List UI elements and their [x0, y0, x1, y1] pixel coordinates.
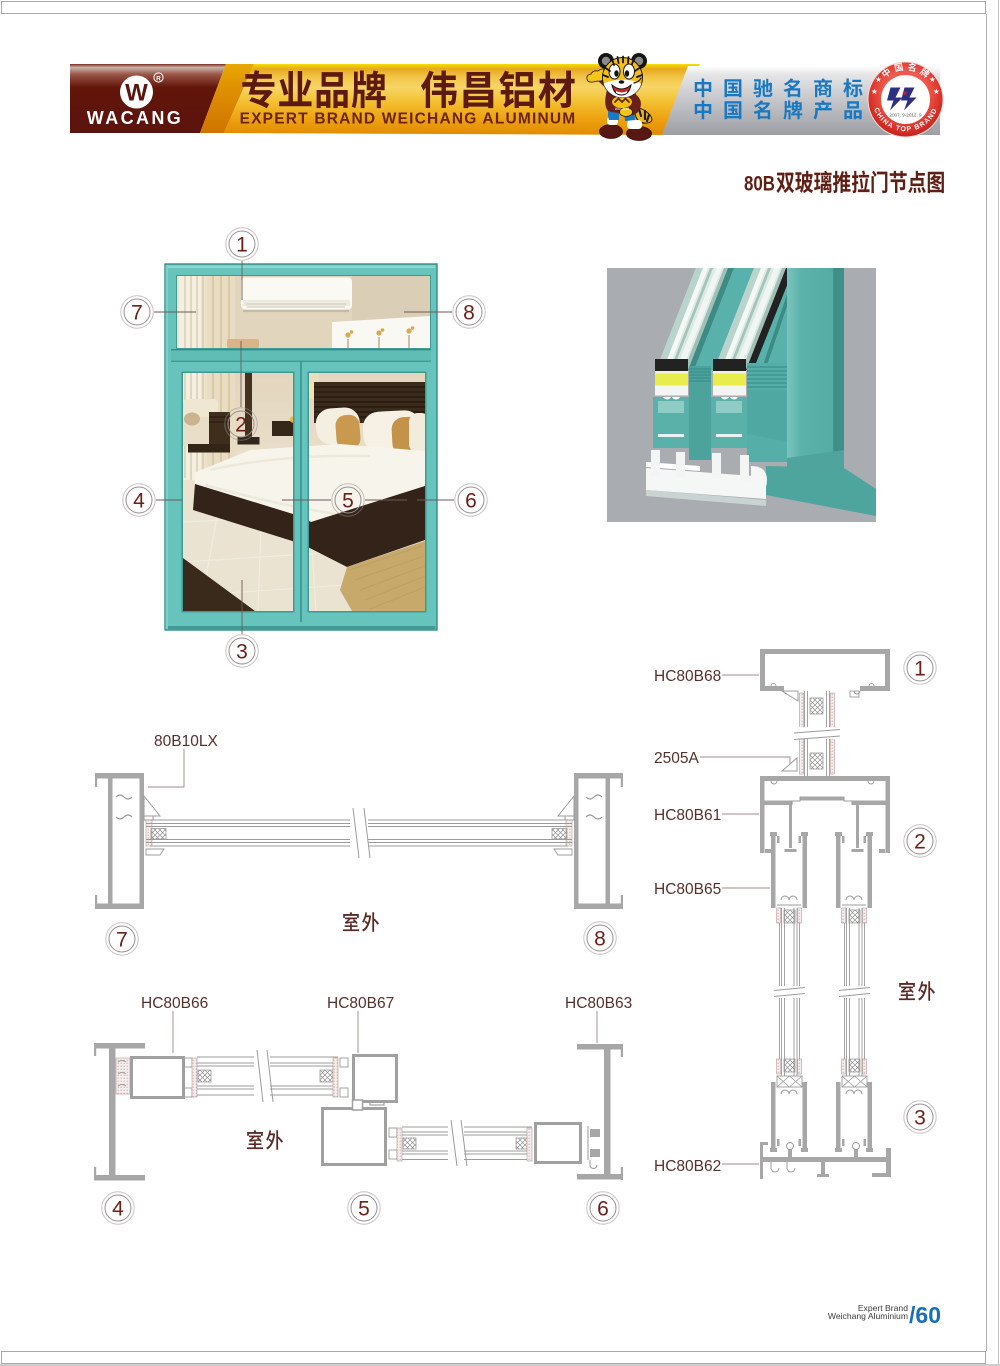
- svg-text:5: 5: [358, 1198, 370, 1221]
- svg-text:7: 7: [131, 302, 143, 325]
- svg-text:2007. 9-2012. 9: 2007. 9-2012. 9: [889, 113, 922, 118]
- svg-text:4: 4: [112, 1198, 124, 1221]
- svg-text:80B: 80B: [744, 172, 775, 196]
- svg-text:EXPERT BRAND WEICHANG ALUMINUM: EXPERT BRAND WEICHANG ALUMINUM: [240, 111, 577, 128]
- svg-text:HC80B62: HC80B62: [654, 1158, 721, 1175]
- svg-text:HC80B65: HC80B65: [654, 881, 721, 898]
- svg-text:★: ★: [929, 75, 936, 84]
- svg-text:3: 3: [914, 1107, 926, 1130]
- svg-text:★: ★: [902, 90, 908, 98]
- svg-text:W: W: [125, 80, 148, 107]
- svg-text:WACANG: WACANG: [615, 107, 630, 111]
- svg-text:4: 4: [133, 490, 145, 513]
- svg-text:80B10LX: 80B10LX: [154, 733, 218, 750]
- svg-text:5: 5: [342, 490, 354, 513]
- svg-text:7: 7: [116, 929, 128, 952]
- svg-text:2: 2: [235, 414, 247, 437]
- svg-text:★: ★: [871, 87, 878, 96]
- svg-text:HC80B63: HC80B63: [565, 995, 632, 1012]
- svg-text:2505A: 2505A: [654, 750, 699, 767]
- svg-text:★: ★: [875, 75, 882, 84]
- svg-text:HC80B66: HC80B66: [141, 995, 208, 1012]
- svg-text:R: R: [156, 75, 161, 82]
- svg-text:8: 8: [463, 302, 475, 325]
- svg-text:HC80B61: HC80B61: [654, 807, 721, 824]
- svg-text:2: 2: [914, 831, 926, 854]
- svg-text:1: 1: [236, 234, 248, 257]
- svg-text:6: 6: [597, 1198, 609, 1221]
- svg-text:HC80B67: HC80B67: [327, 995, 394, 1012]
- svg-text:★: ★: [933, 87, 940, 96]
- svg-text:WACANG: WACANG: [87, 108, 183, 128]
- svg-text:8: 8: [594, 928, 606, 951]
- svg-text:6: 6: [465, 490, 477, 513]
- svg-text:1: 1: [914, 658, 926, 681]
- svg-text:HC80B68: HC80B68: [654, 668, 721, 685]
